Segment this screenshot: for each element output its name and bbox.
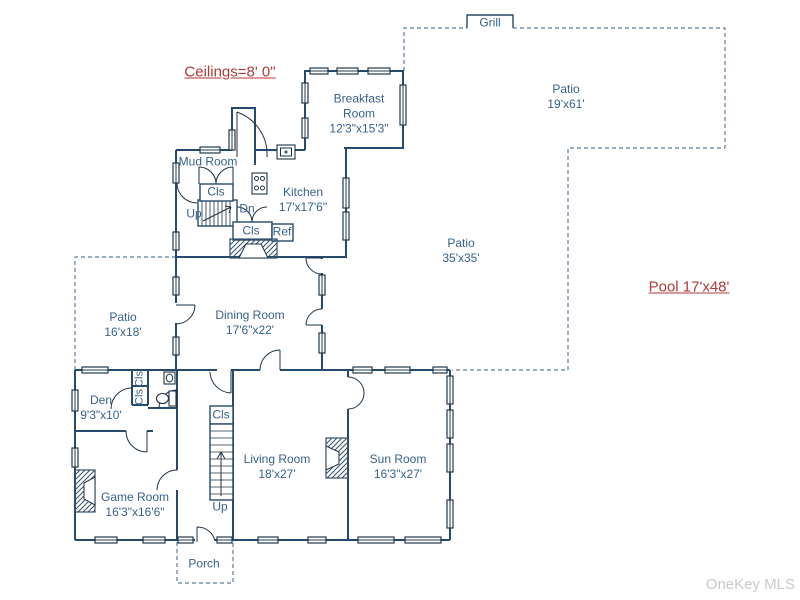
closet-label-mudroom: Cls [207, 185, 224, 200]
bath-sink [164, 372, 175, 384]
dining-dims: 17'6"x22' [226, 323, 274, 337]
room-label-game-room: Game Room 16'3"x16'6" [101, 490, 169, 520]
patio-side-label: Patio 16'x18' [104, 310, 141, 340]
patio-courtyard-name: Patio [447, 236, 474, 250]
room-label-sun-room: Sun Room 16'3"x27' [370, 452, 427, 482]
dining-name: Dining Room [215, 308, 284, 322]
breakfast-name-line1: Breakfast [334, 92, 385, 106]
closet-label-hall: Cls [212, 408, 229, 423]
breakfast-name-line2: Room [343, 107, 375, 121]
game-name: Game Room [101, 490, 169, 504]
sun-name: Sun Room [370, 452, 427, 466]
sun-dims: 16'3"x27' [374, 467, 422, 481]
refrigerator-label: Ref [273, 225, 292, 240]
living-name: Living Room [244, 452, 311, 466]
floor-plan: Ceilings=8' 0" Pool 17'x48' Grill Patio … [0, 0, 800, 600]
room-label-kitchen: Kitchen 17'x17'6" [279, 185, 327, 215]
grill-label: Grill [479, 16, 500, 31]
room-label-den: Den 9'3"x10' [80, 393, 122, 423]
watermark: OneKey MLS [706, 576, 795, 593]
room-label-mud-room: Mud Room [179, 155, 238, 170]
stove [252, 173, 267, 194]
living-dims: 18'x27' [258, 467, 295, 481]
patio-courtyard-dims: 35'x35' [442, 251, 479, 265]
pool-annotation: Pool 17'x48' [649, 279, 730, 296]
patio-side-name: Patio [109, 310, 136, 324]
patio-side-dims: 16'x18' [104, 325, 141, 339]
patio-upper-label: Patio 19'x61' [547, 82, 584, 112]
patio-upper-name: Patio [552, 82, 579, 96]
closet-label-den-upper: Cls [133, 371, 148, 387]
room-label-breakfast: Breakfast Room 12'3"x15'3" [329, 92, 388, 137]
patio-upper-dims: 19'x61' [547, 97, 584, 111]
patio-courtyard-label: Patio 35'x35' [442, 236, 479, 266]
living-fireplace [326, 438, 348, 478]
game-room-fireplace [75, 470, 95, 512]
stairs-up-label-kitchen: Up [186, 207, 201, 222]
closet-label-kitchen: Cls [242, 224, 259, 239]
closet-label-den-lower: Cls [133, 389, 148, 405]
kitchen-dims: 17'x17'6" [279, 200, 327, 214]
porch-label: Porch [188, 557, 219, 572]
den-name: Den [90, 393, 112, 407]
kitchen-name: Kitchen [283, 185, 323, 199]
kitchen-stairs [198, 200, 237, 226]
stairs-down-label: Dn [239, 202, 254, 217]
room-label-living-room: Living Room 18'x27' [244, 452, 311, 482]
dining-fireplace [230, 239, 277, 258]
wall-grill-fixture [277, 145, 295, 159]
stairs-up-label-hall: Up [212, 500, 227, 515]
breakfast-dims: 12'3"x15'3" [329, 122, 388, 136]
room-label-dining: Dining Room 17'6"x22' [215, 308, 284, 338]
ceiling-height-annotation: Ceilings=8' 0" [184, 64, 275, 81]
game-dims: 16'3"x16'6" [105, 505, 164, 519]
den-dims: 9'3"x10' [80, 408, 122, 422]
